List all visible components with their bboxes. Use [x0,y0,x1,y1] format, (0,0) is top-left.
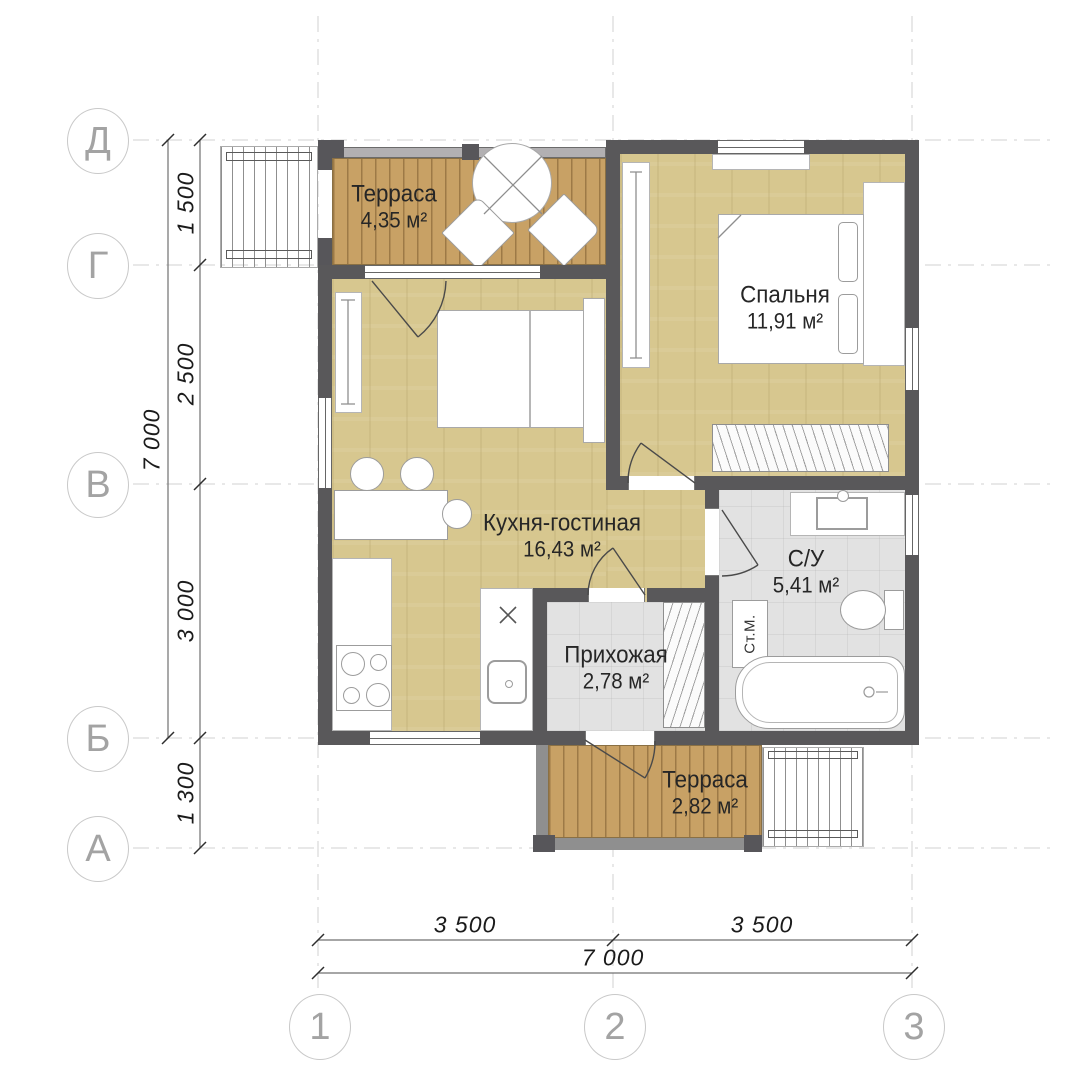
room-label-hallway: Прихожая2,78 м² [564,642,667,694]
dim-left-3000: 3 000 [173,556,200,666]
axis-bubble-row-g: Г [67,233,129,299]
floor-plan: Терраса4,35 м² Спальня11,91 м² Кухня-гос… [0,0,1080,1080]
dim-left-total-7000: 7 000 [139,385,166,495]
bedroom-door-swing [628,443,695,483]
axis-bubble-col-1: 1 [289,994,351,1060]
dim-bottom-total-7000: 7 000 [558,945,668,972]
room-label-bedroom: Спальня11,91 м² [740,282,830,334]
dim-left-2500: 2 500 [173,319,200,429]
radiator-symbol [341,300,355,404]
axis-bubble-row-b: Б [67,706,129,772]
dim-bottom-3500-a: 3 500 [410,912,520,939]
dim-left-1300: 1 300 [173,738,200,848]
axis-bubble-row-d: Д [67,108,129,174]
room-label-terrace-bottom: Терраса2,82 м² [662,767,748,819]
dim-left-1500: 1 500 [173,148,200,258]
axis-bubble-col-2: 2 [584,994,646,1060]
axis-bubble-col-3: 3 [883,994,945,1060]
washing-machine-label: Ст.М. [742,614,759,653]
bathroom-door-swing [722,510,758,576]
dim-bottom-3500-b: 3 500 [707,912,817,939]
bed-fold-line [718,215,741,238]
axis-bubble-row-a: А [67,816,129,882]
room-label-kitchen-living: Кухня-гостиная16,43 м² [483,510,641,562]
wardrobe-rail-symbol [630,172,642,358]
room-label-terrace-top: Терраса4,35 м² [351,181,437,233]
entrance-door-swing [585,740,655,778]
room-label-bathroom: С/У5,41 м² [773,546,839,598]
terrace-door-swing [372,281,446,337]
bathtub-drain [864,687,874,697]
kitchen-hob-cross [500,607,516,623]
axis-bubble-row-v: В [67,452,129,518]
terrace-table-cross [484,156,542,214]
